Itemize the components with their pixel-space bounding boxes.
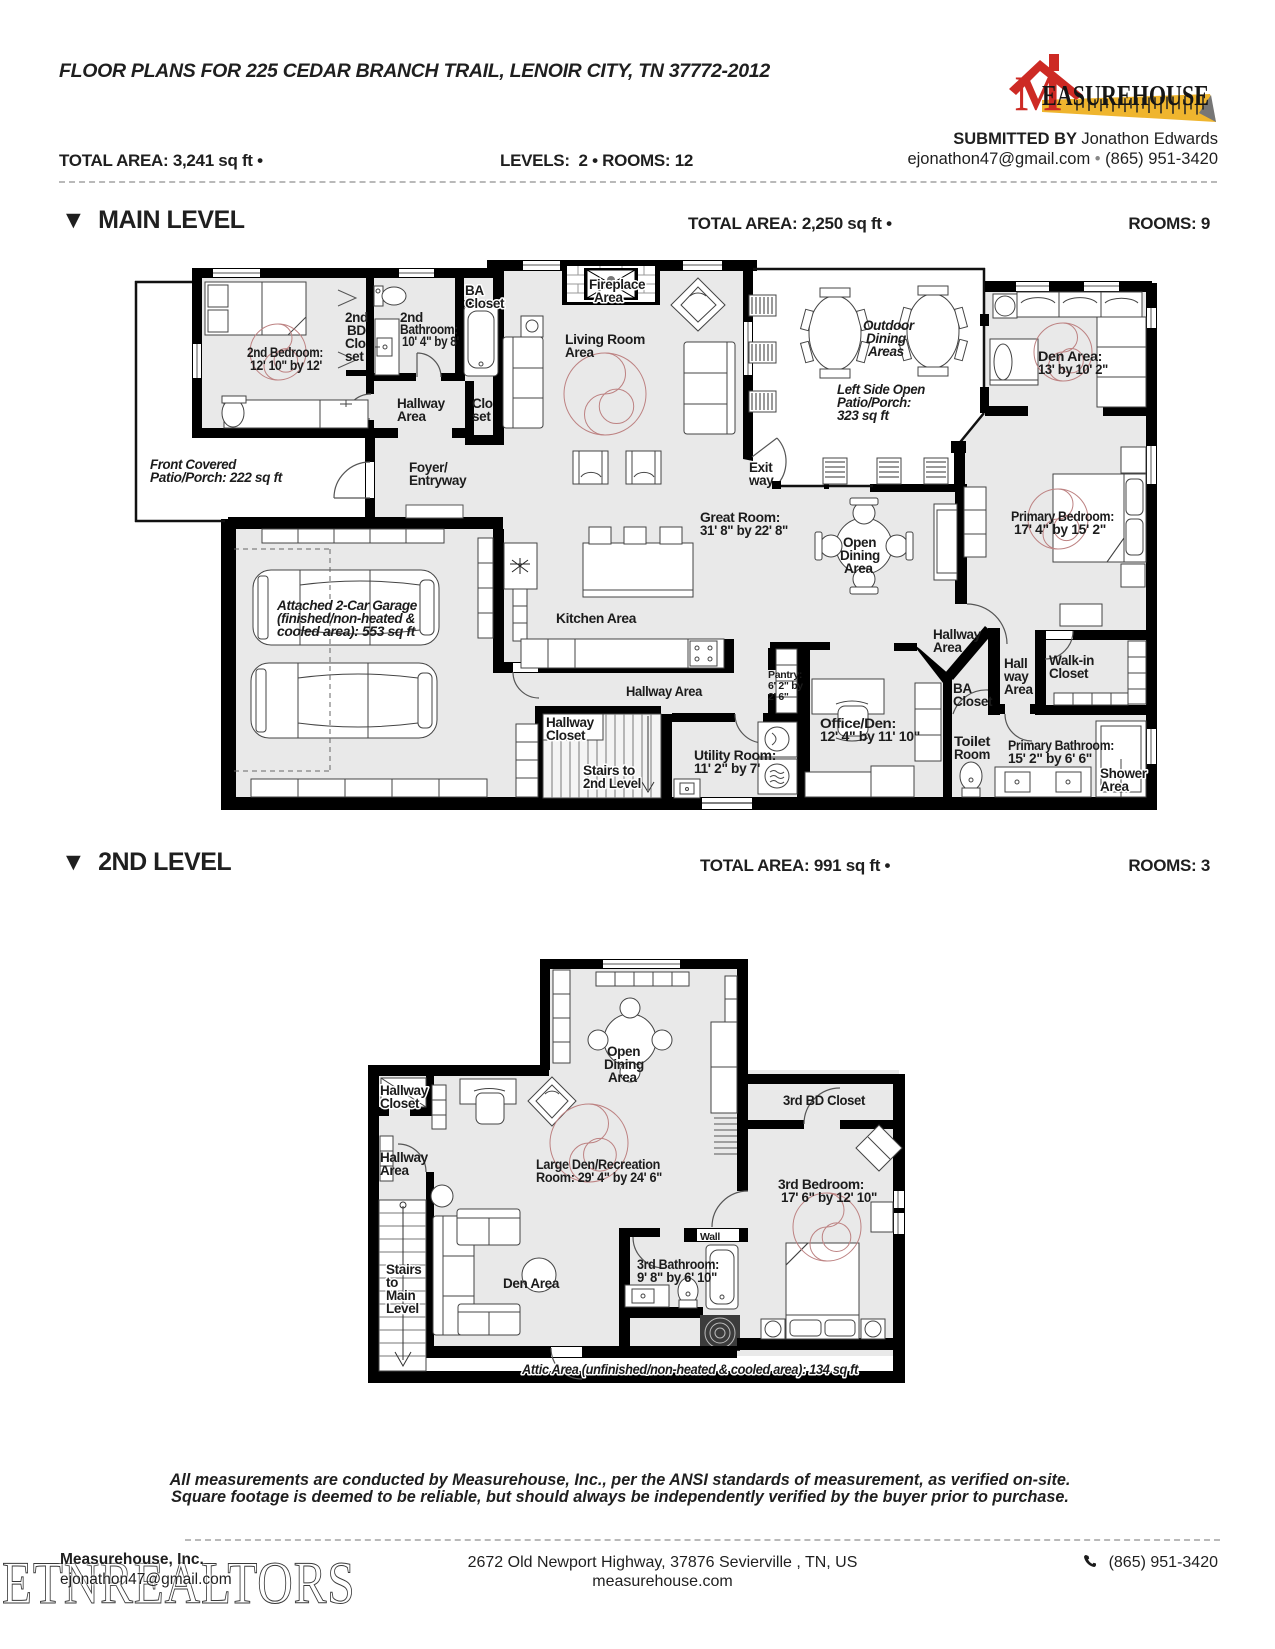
svg-text:Closet: Closet — [546, 728, 586, 743]
svg-text:3rd BD Closet: 3rd BD Closet — [783, 1093, 866, 1108]
svg-text:Room: 29' 4" by 24' 6": Room: 29' 4" by 24' 6" — [536, 1170, 662, 1185]
svg-text:12' 4" by 11' 10": 12' 4" by 11' 10" — [820, 729, 920, 744]
svg-text:Hallway Area: Hallway Area — [626, 684, 703, 699]
svg-text:10' 4" by 8': 10' 4" by 8' — [402, 334, 459, 349]
svg-text:13' by 10' 2": 13' by 10' 2" — [1038, 362, 1108, 377]
svg-text:9' 8" by 6' 10": 9' 8" by 6' 10" — [637, 1270, 717, 1285]
svg-text:12' 10" by 12': 12' 10" by 12' — [250, 358, 322, 373]
svg-text:Kitchen Area: Kitchen Area — [556, 611, 637, 626]
svg-text:Area: Area — [565, 345, 594, 360]
svg-text:Closet: Closet — [1049, 666, 1089, 681]
svg-text:Level: Level — [386, 1301, 419, 1316]
svg-text:323 sq ft: 323 sq ft — [837, 408, 889, 423]
svg-text:Area: Area — [608, 1070, 637, 1085]
svg-text:set: set — [345, 349, 364, 364]
svg-text:Area: Area — [1004, 682, 1033, 697]
svg-text:Den Area: Den Area — [503, 1276, 560, 1291]
svg-text:Room: Room — [954, 747, 990, 762]
svg-text:Entryway: Entryway — [409, 473, 467, 488]
svg-text:31' 8" by 22' 8": 31' 8" by 22' 8" — [700, 523, 788, 538]
svg-text:17' 6" by 12' 10": 17' 6" by 12' 10" — [781, 1190, 877, 1205]
svg-text:cooled area): 553 sq ft: cooled area): 553 sq ft — [277, 624, 416, 639]
svg-text:Area: Area — [380, 1163, 409, 1178]
svg-text:11' 2" by 7': 11' 2" by 7' — [694, 761, 760, 776]
svg-text:17' 4" by 15' 2": 17' 4" by 15' 2" — [1014, 522, 1106, 537]
svg-text:set: set — [472, 409, 491, 424]
svg-text:15' 2" by 6' 6": 15' 2" by 6' 6" — [1008, 751, 1092, 766]
svg-text:Areas: Areas — [867, 344, 905, 359]
svg-text:Area: Area — [844, 561, 873, 576]
svg-text:Area: Area — [397, 409, 426, 424]
svg-text:Area: Area — [594, 290, 623, 305]
svg-text:Closet: Closet — [380, 1096, 420, 1111]
svg-text:Wall: Wall — [700, 1231, 720, 1243]
svg-text:2nd Level: 2nd Level — [583, 776, 641, 791]
svg-text:way: way — [748, 473, 774, 488]
svg-text:Area: Area — [933, 640, 962, 655]
svg-text:Area: Area — [1100, 779, 1129, 794]
svg-text:Closet: Closet — [465, 296, 505, 311]
svg-text:Attic Area (unfinished/non-hea: Attic Area (unfinished/non-heated & cool… — [521, 1362, 859, 1377]
svg-text:Patio/Porch: 222 sq ft: Patio/Porch: 222 sq ft — [150, 470, 283, 485]
svg-text:2' 6": 2' 6" — [768, 691, 789, 703]
svg-text:Closet: Closet — [953, 694, 993, 709]
